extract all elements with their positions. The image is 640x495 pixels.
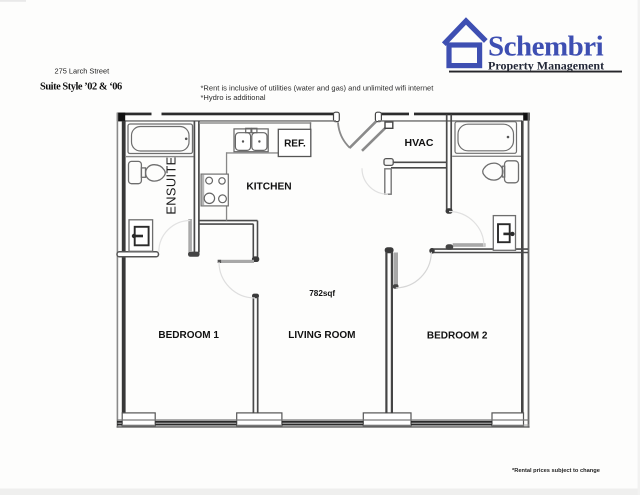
svg-text:BEDROOM 2: BEDROOM 2 xyxy=(427,330,488,341)
svg-text:REF.: REF. xyxy=(284,139,306,150)
svg-text:ENSUITE: ENSUITE xyxy=(164,156,179,214)
svg-text:275 Larch Street: 275 Larch Street xyxy=(55,66,110,75)
svg-text:*Hydro is additional: *Hydro is additional xyxy=(201,93,266,102)
svg-text:*Rental prices subject to chan: *Rental prices subject to change xyxy=(512,468,600,474)
svg-text:Suite Style ’02 & ‘06: Suite Style ’02 & ‘06 xyxy=(40,81,122,92)
svg-text:782sqf: 782sqf xyxy=(309,289,335,298)
svg-text:BEDROOM 1: BEDROOM 1 xyxy=(158,330,219,341)
svg-text:KITCHEN: KITCHEN xyxy=(246,182,291,193)
svg-text:HVAC: HVAC xyxy=(405,137,434,149)
svg-text:Property Management: Property Management xyxy=(488,59,604,73)
svg-text:LIVING ROOM: LIVING ROOM xyxy=(288,330,355,341)
svg-text:*Rent is inclusive of utilitie: *Rent is inclusive of utilities (water a… xyxy=(201,83,435,92)
